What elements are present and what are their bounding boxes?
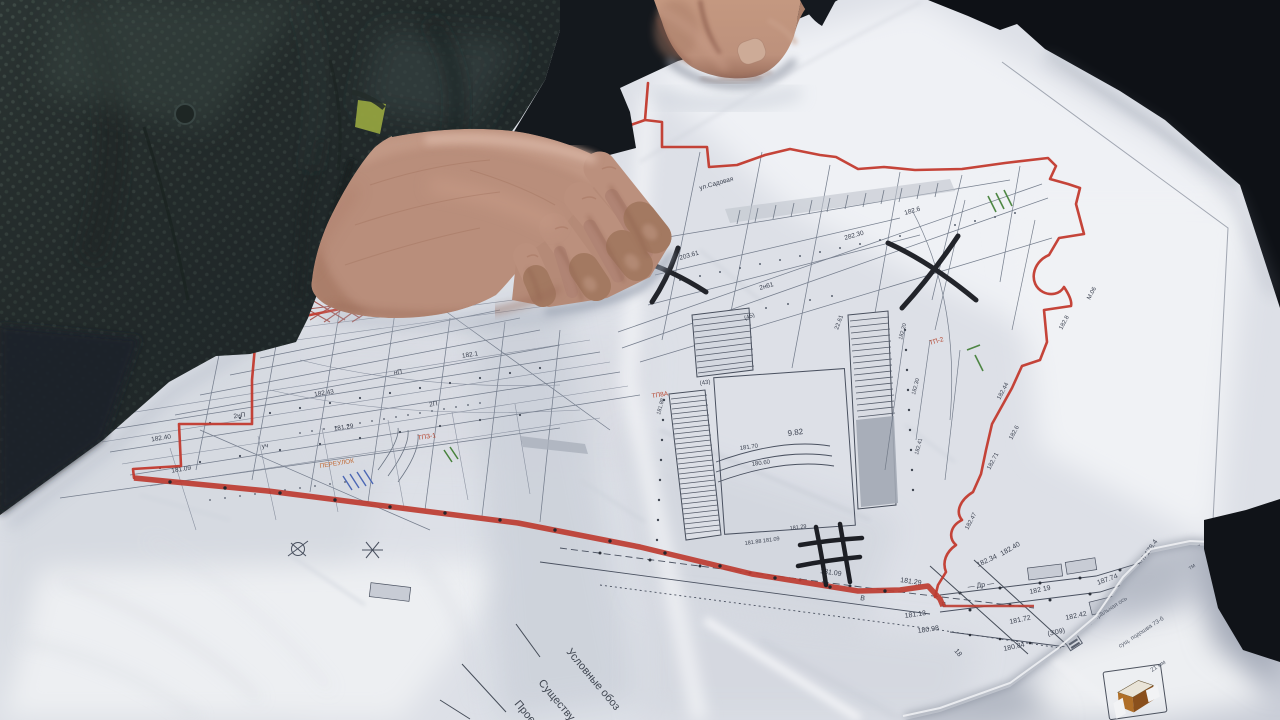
svg-text:2П: 2П [429, 400, 439, 408]
svg-text:нП: нП [393, 368, 403, 376]
svg-text:уч: уч [261, 442, 269, 450]
